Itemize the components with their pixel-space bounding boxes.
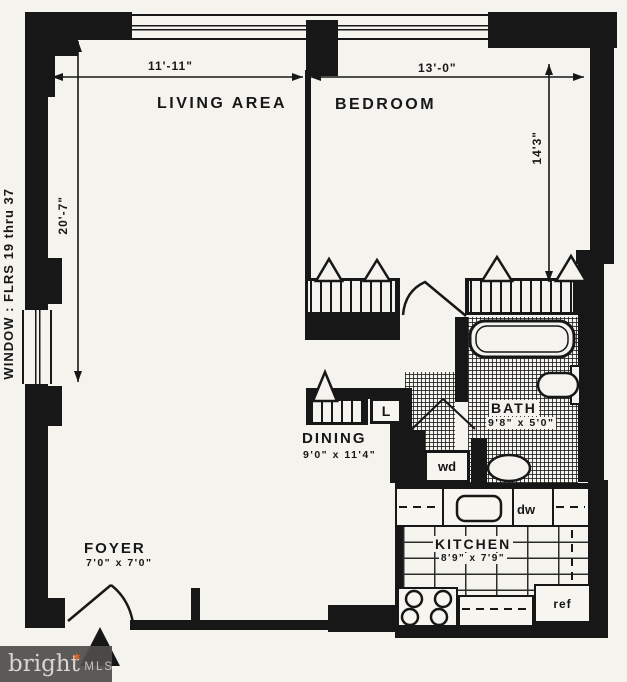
dim-bedroom-width: 13'-0": [418, 61, 457, 75]
brightmls-mls: MLS: [84, 661, 114, 673]
floor-plan: L ref wd: [0, 0, 627, 682]
room-size-bath: 9'8" x 5'0": [486, 417, 556, 429]
bathroom-sink: [538, 366, 580, 404]
room-label-kitchen: KITCHEN: [433, 536, 513, 552]
bathtub: [470, 321, 574, 357]
room-size-foyer: 7'0" x 7'0": [86, 557, 152, 569]
room-size-kitchen: 8'9" x 7'9": [439, 553, 507, 564]
room-label-bath: BATH: [489, 400, 539, 416]
plan-linework: [0, 0, 627, 682]
dim-living-depth: 20'-7": [56, 196, 70, 235]
stove-burners: [402, 591, 451, 625]
brightmls-watermark: bright ✱ MLS: [0, 646, 112, 682]
entry-door: [68, 585, 133, 623]
kitchen-sink: [457, 496, 501, 521]
dim-living-width: 11'-11": [148, 59, 193, 73]
room-label-dining: DINING: [302, 430, 367, 447]
room-label-foyer: FOYER: [84, 540, 146, 557]
dim-line-bedroom-depth: [545, 64, 553, 282]
toilet: [488, 455, 530, 481]
room-label-living: LIVING AREA: [157, 95, 287, 113]
brightmls-brand: bright: [8, 653, 80, 676]
room-label-bedroom: BEDROOM: [335, 96, 436, 114]
bedroom-door-swing: [403, 282, 466, 316]
dim-bedroom-depth: 14'3": [530, 131, 544, 165]
room-size-dining: 9'0" x 11'4": [303, 449, 376, 461]
hall-door-swings: [410, 399, 475, 431]
dishwasher-label: dw: [517, 502, 535, 517]
dim-line-horizontal: [52, 73, 584, 81]
window-note: WINDOW : FLRS 19 thru 37: [1, 188, 16, 380]
dim-line-living-depth: [74, 41, 82, 382]
star-icon: ✱: [73, 652, 81, 663]
